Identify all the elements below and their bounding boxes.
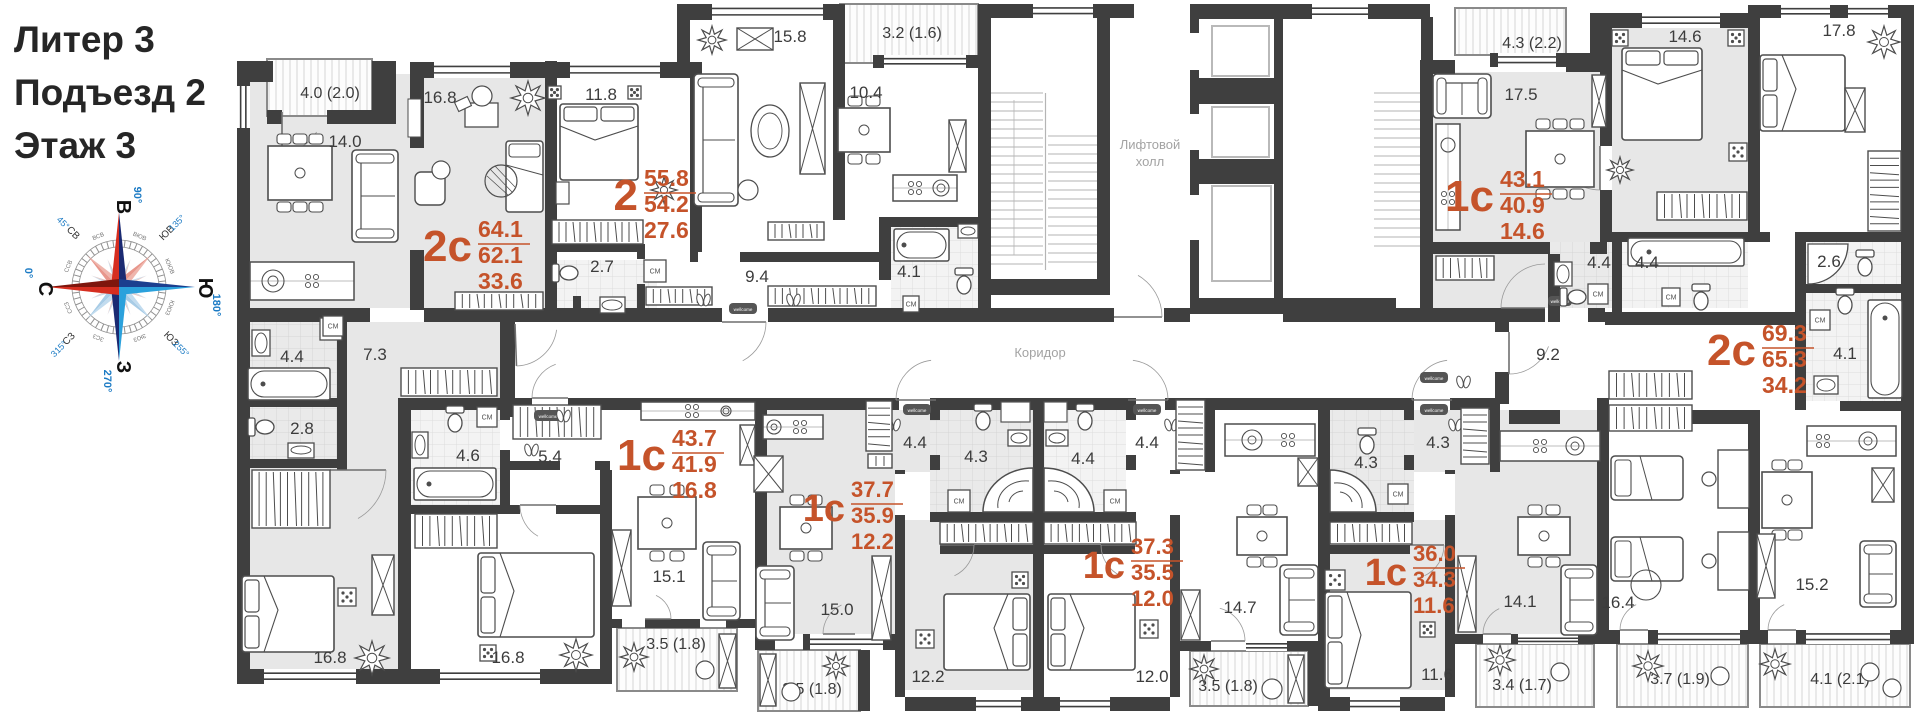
svg-text:5.4: 5.4 xyxy=(538,447,562,466)
svg-text:4.4: 4.4 xyxy=(1135,433,1159,452)
svg-text:11.6: 11.6 xyxy=(1413,593,1455,618)
svg-text:3.5 (1.8): 3.5 (1.8) xyxy=(646,636,706,653)
svg-text:27.6: 27.6 xyxy=(644,217,689,243)
svg-text:холл: холл xyxy=(1136,154,1164,169)
svg-text:62.1: 62.1 xyxy=(478,242,523,268)
svg-text:wellcome: wellcome xyxy=(734,307,753,312)
svg-text:0°: 0° xyxy=(22,268,34,279)
svg-text:64.1: 64.1 xyxy=(478,216,523,242)
svg-text:11.6: 11.6 xyxy=(1421,665,1453,684)
svg-text:В: В xyxy=(112,200,134,214)
svg-text:14.6: 14.6 xyxy=(1668,27,1701,46)
svg-text:Этаж 3: Этаж 3 xyxy=(14,125,136,166)
svg-text:1с: 1с xyxy=(617,431,666,480)
svg-text:wellcome: wellcome xyxy=(539,414,558,419)
svg-text:55.8: 55.8 xyxy=(644,165,689,191)
svg-text:Коридор: Коридор xyxy=(1014,345,1065,360)
svg-text:СМ: СМ xyxy=(954,499,965,506)
svg-text:wellcome: wellcome xyxy=(908,408,927,413)
svg-text:4.3: 4.3 xyxy=(1426,433,1450,452)
svg-text:СМ: СМ xyxy=(1393,492,1404,499)
svg-text:17.8: 17.8 xyxy=(1822,21,1855,40)
svg-text:69.3: 69.3 xyxy=(1762,320,1807,346)
svg-text:4.1: 4.1 xyxy=(1833,344,1857,363)
svg-text:Лифтовой: Лифтовой xyxy=(1120,137,1181,152)
svg-text:1с: 1с xyxy=(1365,552,1407,594)
svg-text:3.4 (1.7): 3.4 (1.7) xyxy=(1492,677,1552,694)
svg-text:270°: 270° xyxy=(101,370,113,393)
svg-text:4.6: 4.6 xyxy=(456,446,480,465)
svg-text:15.1: 15.1 xyxy=(652,567,685,586)
svg-text:9.4: 9.4 xyxy=(745,267,769,286)
svg-text:41.9: 41.9 xyxy=(672,451,717,477)
svg-text:З: З xyxy=(112,361,134,374)
svg-text:12.2: 12.2 xyxy=(851,529,894,554)
svg-text:16.8: 16.8 xyxy=(423,88,456,107)
svg-text:СМ: СМ xyxy=(906,302,917,309)
svg-text:16.8: 16.8 xyxy=(491,648,524,667)
svg-text:4.4: 4.4 xyxy=(1635,253,1659,272)
svg-text:1с: 1с xyxy=(803,488,845,530)
svg-text:12.2: 12.2 xyxy=(911,667,944,686)
svg-text:180°: 180° xyxy=(210,294,222,317)
svg-text:65.3: 65.3 xyxy=(1762,346,1807,372)
svg-text:9.2: 9.2 xyxy=(1536,345,1560,364)
svg-text:СМ: СМ xyxy=(1666,295,1677,302)
svg-text:2: 2 xyxy=(614,171,638,220)
svg-text:7.3: 7.3 xyxy=(363,345,387,364)
svg-text:16.4: 16.4 xyxy=(1601,593,1634,612)
svg-text:3.7 (1.9): 3.7 (1.9) xyxy=(1650,671,1710,688)
svg-text:90°: 90° xyxy=(131,187,143,204)
svg-text:Литер 3: Литер 3 xyxy=(14,19,155,60)
svg-text:33.6: 33.6 xyxy=(478,268,523,294)
svg-text:17.5: 17.5 xyxy=(1504,85,1537,104)
svg-text:СМ: СМ xyxy=(1815,318,1826,325)
svg-text:wellcome: wellcome xyxy=(1425,376,1444,381)
svg-text:54.2: 54.2 xyxy=(644,191,689,217)
svg-text:4.4: 4.4 xyxy=(903,433,927,452)
svg-text:4.3: 4.3 xyxy=(1354,453,1378,472)
svg-text:С: С xyxy=(34,282,56,296)
svg-text:35.5: 35.5 xyxy=(1131,560,1174,585)
svg-text:43.7: 43.7 xyxy=(672,425,717,451)
svg-text:4.4: 4.4 xyxy=(280,347,304,366)
svg-text:14.7: 14.7 xyxy=(1223,598,1256,617)
svg-text:СМ: СМ xyxy=(1593,292,1604,299)
svg-text:15.8: 15.8 xyxy=(773,27,806,46)
svg-text:4.3 (2.2): 4.3 (2.2) xyxy=(1502,35,1562,52)
svg-text:43.1: 43.1 xyxy=(1500,166,1545,192)
svg-text:14.6: 14.6 xyxy=(1500,218,1545,244)
svg-text:15.0: 15.0 xyxy=(820,600,853,619)
svg-text:2.7: 2.7 xyxy=(590,257,614,276)
svg-text:14.0: 14.0 xyxy=(328,132,361,151)
svg-text:37.3: 37.3 xyxy=(1131,534,1174,559)
svg-text:wellcome: wellcome xyxy=(1425,408,1444,413)
svg-text:СМ: СМ xyxy=(482,415,493,422)
svg-text:36.0: 36.0 xyxy=(1413,541,1456,566)
svg-text:СМ: СМ xyxy=(328,324,339,331)
svg-text:16.8: 16.8 xyxy=(313,648,346,667)
svg-text:4.3: 4.3 xyxy=(964,447,988,466)
svg-text:3.2 (1.6): 3.2 (1.6) xyxy=(882,25,942,42)
svg-text:2.8: 2.8 xyxy=(290,419,314,438)
svg-text:12.0: 12.0 xyxy=(1131,586,1174,611)
svg-text:4.0 (2.0): 4.0 (2.0) xyxy=(300,85,360,102)
svg-text:1с: 1с xyxy=(1083,545,1125,587)
svg-text:СМ: СМ xyxy=(650,269,661,276)
svg-text:34.3: 34.3 xyxy=(1413,567,1456,592)
svg-text:14.1: 14.1 xyxy=(1503,592,1536,611)
svg-text:40.9: 40.9 xyxy=(1500,192,1545,218)
svg-text:СМ: СМ xyxy=(1110,499,1121,506)
svg-text:37.7: 37.7 xyxy=(851,477,894,502)
svg-text:16.8: 16.8 xyxy=(672,477,717,503)
svg-text:4.4: 4.4 xyxy=(1071,449,1095,468)
svg-text:3.5 (1.8): 3.5 (1.8) xyxy=(1198,678,1258,695)
svg-text:1с: 1с xyxy=(1445,172,1494,221)
svg-text:4.4: 4.4 xyxy=(1587,253,1611,272)
svg-text:12.0: 12.0 xyxy=(1135,667,1168,686)
svg-text:Подъезд 2: Подъезд 2 xyxy=(14,72,206,113)
svg-text:2.6: 2.6 xyxy=(1817,252,1841,271)
svg-text:11.8: 11.8 xyxy=(585,85,617,104)
svg-text:35.9: 35.9 xyxy=(851,503,894,528)
svg-text:2с: 2с xyxy=(1707,326,1756,375)
svg-text:34.2: 34.2 xyxy=(1762,372,1807,398)
svg-text:2с: 2с xyxy=(423,222,472,271)
svg-text:15.2: 15.2 xyxy=(1795,575,1828,594)
svg-text:wellcome: wellcome xyxy=(1138,408,1157,413)
svg-text:4.1: 4.1 xyxy=(897,262,921,281)
svg-text:10.4: 10.4 xyxy=(849,83,882,102)
